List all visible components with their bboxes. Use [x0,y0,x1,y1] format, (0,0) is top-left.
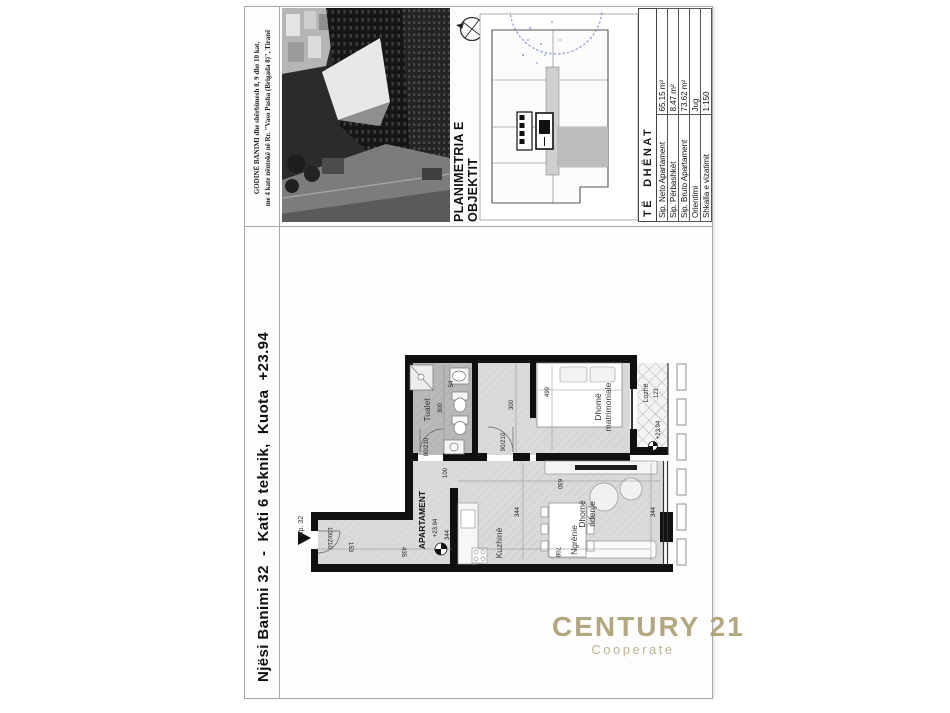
room-label-living-2: ndenje [587,501,597,527]
dim-living-len: 630 [556,479,562,490]
table-row: Sip. Neto Apartament 65.15 m² [657,9,668,222]
room-label-living-1: Dhomë [577,500,587,528]
building-caption-line2: me 4 kate nëntokë në Rr. "Vaso Pasha (Br… [263,12,274,224]
dim-entry-door: 100/210 [326,527,332,549]
building-photo [282,8,450,222]
facade-windows [677,364,686,565]
dim-kitchen-depth: 344 [515,506,521,517]
room-label-kitchen: Kuzhinë [494,527,504,558]
table-row: Orientimi Jug [690,9,701,222]
photo-tower-face [402,8,450,160]
level-marker-apartment [435,543,447,555]
title-strip-divider [279,6,280,698]
dim-bath-w: 54 [449,380,455,387]
table-row: Shkalla e vizatimit 1:150 [701,9,712,222]
dim-bath-door: 80/210 [424,437,430,456]
floor-plan-drawing: Tualet Dhomë matrimoniale Lozhë Kuzhinë … [288,336,712,610]
unit-tag: Ap. 32 [298,516,305,536]
header-band-divider [244,226,712,227]
dim-hall-len: 300 [509,399,515,410]
dim-bath-len: 300 [438,402,444,413]
table-row-value: 8.47 m² [668,9,679,116]
table-row-label: Shkalla e vizatimit [701,115,712,222]
dim-apt: 344 [445,529,451,540]
site-plan-drawing [478,12,644,224]
dim-entry-len: 435 [400,547,406,558]
table-row: Sip. Përbashkët 8.47 m² [668,9,679,222]
table-row-value: 1:150 [701,9,712,116]
dim-hall-door: 90/210 [501,432,507,451]
table-row-label: Sip. Përbashkët [668,115,679,222]
section-title: PLANIMETRIA E OBJEKTIT [453,54,479,222]
room-label-dining: Ngrënie [569,525,579,555]
room-label-bedroom-1: Dhomë [593,393,603,421]
building-caption-line1: GODINË BANIMI dhe shërbimesh 8, 9 dhe 10… [252,12,263,224]
table-row: Sip. Bruto Apartament 73.62 m² [679,9,690,222]
room-label-bathroom: Tualet [422,398,432,422]
floor-balcony [637,363,668,447]
table-row-label: Sip. Bruto Apartament [679,115,690,222]
table-row-label: Sip. Neto Apartament [657,115,668,222]
brand-logo: CENTURY 21 [552,612,714,643]
dim-living-w: 708 [554,547,560,558]
building-caption: GODINË BANIMI dhe shërbimesh 8, 9 dhe 10… [248,12,278,224]
table-row-label: Orientimi [690,115,701,222]
dim-entry-seg: 153 [347,542,353,553]
table-row-value: Jug [690,9,701,116]
data-table-title: TË DHËNAT [639,9,657,222]
apartment-level: +23.94 [433,518,439,537]
unit-title: Njësi Banimi 32 - Kati 6 teknik, Kuota +… [249,230,278,694]
level-marker-balcony [649,442,658,451]
dim-balcony-level: +23.94 [656,420,662,439]
brand-sublabel: Cooperate [552,643,714,657]
dim-pass-w: 100 [443,467,449,478]
scanned-floorplan-page: GODINË BANIMI dhe shërbimesh 8, 9 dhe 10… [0,0,950,713]
brand-watermark: CENTURY 21 Cooperate [552,612,714,657]
dim-bed-len: 499 [545,386,551,397]
table-row-value: 65.15 m² [657,9,668,116]
dim-balcony-w: 121 [654,387,660,398]
data-table: TË DHËNAT Sip. Neto Apartament 65.15 m² … [638,8,708,222]
apartment-label: APARTAMENT [417,490,427,549]
room-label-balcony: Lozhë [643,383,650,402]
room-label-bedroom-2: matrimoniale [603,382,613,431]
table-row-value: 73.62 m² [679,9,690,116]
site-apartment-highlight [557,127,608,167]
dim-facade-w: 344 [651,506,657,517]
